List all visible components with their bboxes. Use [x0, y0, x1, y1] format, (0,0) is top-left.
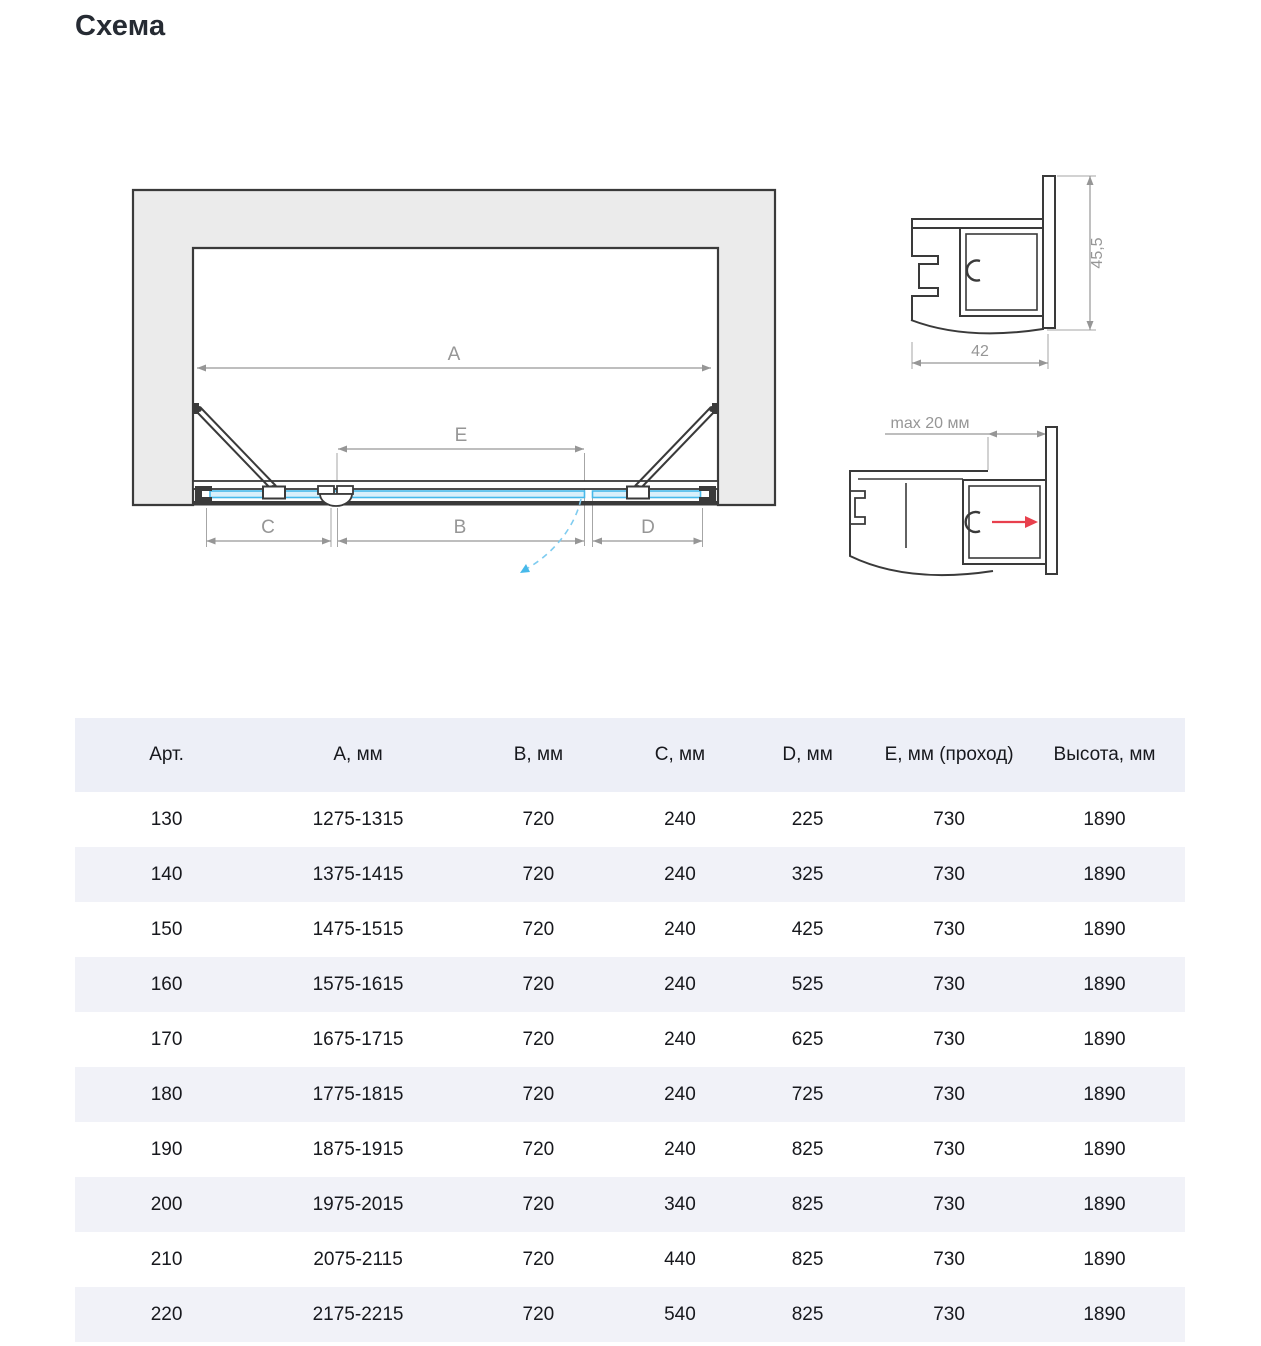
table-cell-b: 720	[458, 792, 619, 847]
table-cell-c: 540	[619, 1287, 741, 1342]
table-cell-art: 160	[75, 957, 258, 1012]
col-e: Е, мм (проход)	[874, 718, 1024, 792]
col-art: Арт.	[75, 718, 258, 792]
table-cell-art: 130	[75, 792, 258, 847]
dimension-c: C	[207, 517, 332, 545]
table-cell-b: 720	[458, 847, 619, 902]
dimension-profile-width: 42	[912, 334, 1048, 369]
col-d: D, мм	[741, 718, 874, 792]
left-connector-block	[263, 487, 285, 499]
table-cell-b: 720	[458, 1287, 619, 1342]
schematic-drawing: A E	[0, 0, 1261, 660]
left-support-brace	[193, 403, 276, 491]
table-row: 1901875-19157202408257301890	[75, 1122, 1185, 1177]
table-cell-height: 1890	[1024, 1177, 1185, 1232]
dimension-max-adjustment: max 20 мм	[885, 415, 1046, 470]
table-cell-e: 730	[874, 1232, 1024, 1287]
profile-height-label: 45,5	[1089, 237, 1106, 268]
table-cell-d: 325	[741, 847, 874, 902]
table-cell-e: 730	[874, 902, 1024, 957]
col-b: В, мм	[458, 718, 619, 792]
adjustment-arrow	[992, 516, 1038, 528]
table-cell-e: 730	[874, 957, 1024, 1012]
track-bottom-rail	[193, 501, 718, 506]
table-row: 1501475-15157202404257301890	[75, 902, 1185, 957]
table-cell-d: 225	[741, 792, 874, 847]
table-cell-height: 1890	[1024, 1067, 1185, 1122]
dimension-e: E	[338, 425, 584, 453]
size-table: Арт. А, мм В, мм С, мм D, мм Е, мм (прох…	[75, 718, 1185, 1342]
profile-width-label: 42	[971, 343, 989, 360]
table-cell-d: 825	[741, 1232, 874, 1287]
table-cell-height: 1890	[1024, 957, 1185, 1012]
table-cell-c: 240	[619, 792, 741, 847]
table-cell-a: 1675-1715	[258, 1012, 458, 1067]
table-cell-b: 720	[458, 1232, 619, 1287]
table-cell-c: 240	[619, 902, 741, 957]
table-cell-a: 1475-1515	[258, 902, 458, 957]
table-cell-d: 825	[741, 1122, 874, 1177]
table-cell-a: 1875-1915	[258, 1122, 458, 1177]
table-body: 1301275-131572024022573018901401375-1415…	[75, 792, 1185, 1342]
right-connector-block	[627, 487, 649, 499]
table-cell-c: 240	[619, 1012, 741, 1067]
table-row: 2001975-20157203408257301890	[75, 1177, 1185, 1232]
dim-c-label: C	[261, 517, 275, 538]
table-cell-d: 625	[741, 1012, 874, 1067]
table-row: 2202175-22157205408257301890	[75, 1287, 1185, 1342]
dimension-d: D	[593, 517, 703, 545]
table-header: Арт. А, мм В, мм С, мм D, мм Е, мм (прох…	[75, 718, 1185, 792]
table-row: 1301275-13157202402257301890	[75, 792, 1185, 847]
adjustment-label: max 20 мм	[891, 415, 970, 432]
dim-d-label: D	[641, 517, 655, 538]
right-support-brace	[635, 403, 718, 491]
table-cell-art: 170	[75, 1012, 258, 1067]
table-cell-a: 1375-1415	[258, 847, 458, 902]
table-cell-e: 730	[874, 847, 1024, 902]
table-cell-c: 440	[619, 1232, 741, 1287]
table-cell-art: 140	[75, 847, 258, 902]
table-cell-c: 240	[619, 1122, 741, 1177]
table-cell-d: 425	[741, 902, 874, 957]
table-cell-b: 720	[458, 957, 619, 1012]
table-cell-a: 1575-1615	[258, 957, 458, 1012]
col-height: Высота, мм	[1024, 718, 1185, 792]
table-cell-a: 2175-2215	[258, 1287, 458, 1342]
dim-e-label: E	[455, 425, 468, 446]
table-cell-a: 2075-2115	[258, 1232, 458, 1287]
table-cell-e: 730	[874, 1067, 1024, 1122]
table-row: 1601575-16157202405257301890	[75, 957, 1185, 1012]
profile-bottom-flange	[1046, 427, 1057, 574]
table-cell-e: 730	[874, 1177, 1024, 1232]
table-cell-d: 525	[741, 957, 874, 1012]
profile-top-flange	[1043, 176, 1055, 328]
table-cell-height: 1890	[1024, 1287, 1185, 1342]
col-c: С, мм	[619, 718, 741, 792]
scheme-page: Схема A	[0, 0, 1261, 1346]
table-cell-height: 1890	[1024, 1122, 1185, 1177]
table-row: 1801775-18157202407257301890	[75, 1067, 1185, 1122]
table-cell-art: 150	[75, 902, 258, 957]
table-cell-c: 240	[619, 847, 741, 902]
table-cell-b: 720	[458, 1067, 619, 1122]
table-cell-e: 730	[874, 792, 1024, 847]
table-cell-height: 1890	[1024, 902, 1185, 957]
table-cell-art: 220	[75, 1287, 258, 1342]
dimension-a: A	[197, 344, 711, 372]
table-cell-c: 240	[619, 957, 741, 1012]
col-a: А, мм	[258, 718, 458, 792]
table-cell-d: 825	[741, 1287, 874, 1342]
table-cell-height: 1890	[1024, 1232, 1185, 1287]
table-cell-b: 720	[458, 902, 619, 957]
table-row: 2102075-21157204408257301890	[75, 1232, 1185, 1287]
table-cell-b: 720	[458, 1177, 619, 1232]
table-cell-art: 190	[75, 1122, 258, 1177]
table-cell-e: 730	[874, 1122, 1024, 1177]
table-cell-height: 1890	[1024, 847, 1185, 902]
table-cell-c: 240	[619, 1067, 741, 1122]
door-swing-arc	[520, 499, 581, 573]
table-cell-art: 200	[75, 1177, 258, 1232]
right-wall-bracket	[699, 486, 716, 504]
glass-clip-icon	[966, 512, 980, 532]
table-cell-height: 1890	[1024, 792, 1185, 847]
dimension-b: B	[338, 517, 584, 545]
dim-b-label: B	[454, 517, 467, 538]
table-cell-a: 1775-1815	[258, 1067, 458, 1122]
table-cell-b: 720	[458, 1122, 619, 1177]
table-row: 1701675-17157202406257301890	[75, 1012, 1185, 1067]
table-row: 1401375-14157202403257301890	[75, 847, 1185, 902]
table-cell-b: 720	[458, 1012, 619, 1067]
table-cell-height: 1890	[1024, 1012, 1185, 1067]
table-cell-c: 340	[619, 1177, 741, 1232]
dim-a-label: A	[448, 344, 461, 365]
table-cell-e: 730	[874, 1287, 1024, 1342]
table-cell-d: 725	[741, 1067, 874, 1122]
table-cell-d: 825	[741, 1177, 874, 1232]
table-cell-e: 730	[874, 1012, 1024, 1067]
profile-section-top: 42 45,5	[911, 176, 1106, 369]
table-cell-a: 1275-1315	[258, 792, 458, 847]
table-cell-art: 180	[75, 1067, 258, 1122]
table-cell-art: 210	[75, 1232, 258, 1287]
front-view: A E	[133, 190, 775, 573]
profile-section-bottom: max 20 мм	[850, 415, 1057, 575]
glass-clip-icon	[967, 261, 980, 281]
table-cell-a: 1975-2015	[258, 1177, 458, 1232]
